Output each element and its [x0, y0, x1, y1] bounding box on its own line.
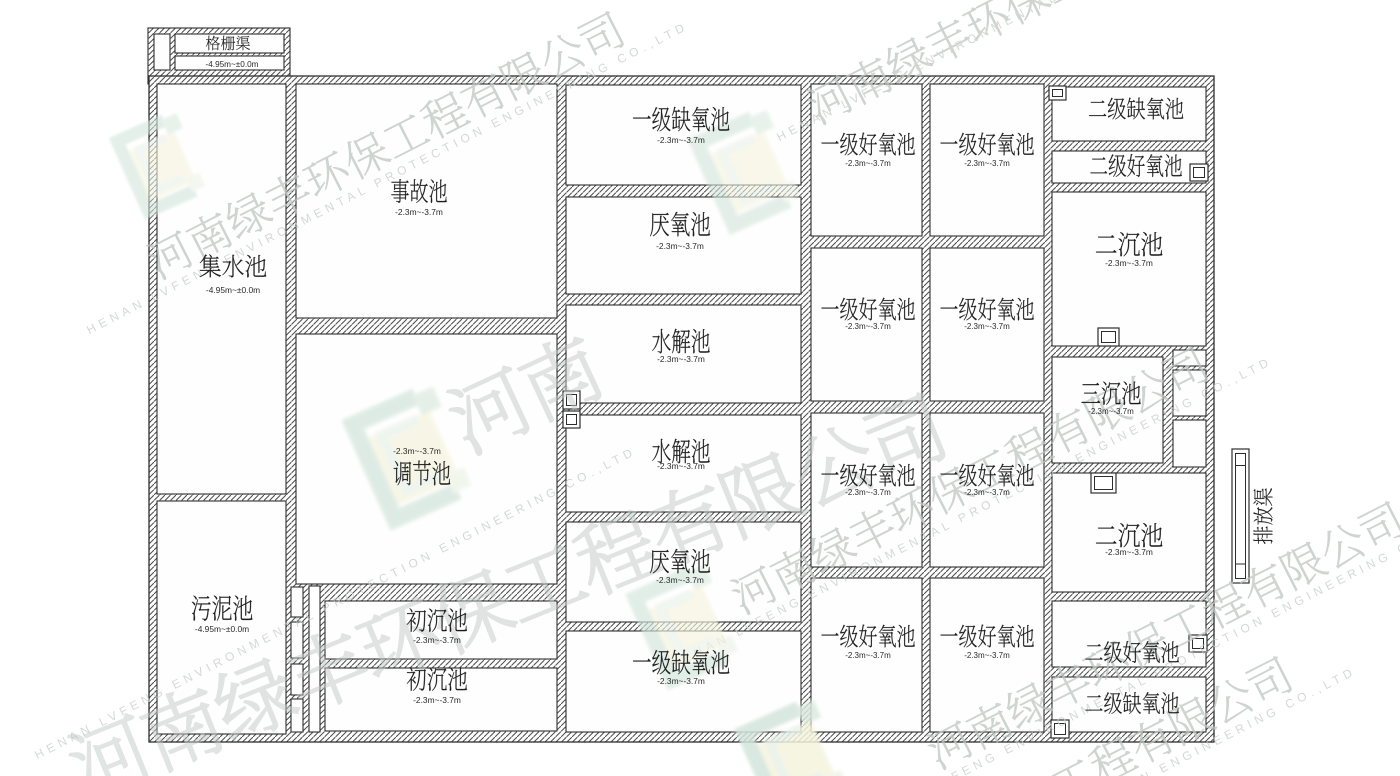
- svg-text:-4.95m~±0.0m: -4.95m~±0.0m: [206, 285, 260, 295]
- svg-text:-2.3m~-3.7m: -2.3m~-3.7m: [845, 159, 891, 168]
- svg-text:-4.95m~±0.0m: -4.95m~±0.0m: [206, 60, 259, 69]
- svg-text:-2.3m~-3.7m: -2.3m~-3.7m: [657, 461, 705, 471]
- svg-text:-2.3m~-3.7m: -2.3m~-3.7m: [656, 575, 704, 585]
- svg-text:-2.3m~-3.7m: -2.3m~-3.7m: [964, 488, 1010, 497]
- svg-text:-2.3m~-3.7m: -2.3m~-3.7m: [1105, 547, 1153, 557]
- svg-text:-2.3m~-3.7m: -2.3m~-3.7m: [395, 207, 443, 217]
- svg-text:-2.3m~-3.7m: -2.3m~-3.7m: [413, 635, 461, 645]
- svg-text:-2.3m~-3.7m: -2.3m~-3.7m: [393, 446, 441, 456]
- svg-text:-2.3m~-3.7m: -2.3m~-3.7m: [657, 354, 705, 364]
- svg-text:-2.3m~-3.7m: -2.3m~-3.7m: [413, 695, 461, 705]
- svg-text:-2.3m~-3.7m: -2.3m~-3.7m: [845, 488, 891, 497]
- svg-text:-2.3m~-3.7m: -2.3m~-3.7m: [657, 135, 705, 145]
- svg-text:-2.3m~-3.7m: -2.3m~-3.7m: [845, 322, 891, 331]
- svg-text:-2.3m~-3.7m: -2.3m~-3.7m: [657, 676, 705, 686]
- svg-text:-2.3m~-3.7m: -2.3m~-3.7m: [656, 241, 704, 251]
- svg-text:-2.3m~-3.7m: -2.3m~-3.7m: [964, 159, 1010, 168]
- svg-text:-4.95m~±0.0m: -4.95m~±0.0m: [195, 624, 249, 634]
- svg-text:-2.3m~-3.7m: -2.3m~-3.7m: [964, 651, 1010, 660]
- svg-text:-2.3m~-3.7m: -2.3m~-3.7m: [1088, 407, 1134, 416]
- svg-text:-2.3m~-3.7m: -2.3m~-3.7m: [1105, 258, 1153, 268]
- svg-text:-2.3m~-3.7m: -2.3m~-3.7m: [845, 651, 891, 660]
- svg-text:-2.3m~-3.7m: -2.3m~-3.7m: [964, 322, 1010, 331]
